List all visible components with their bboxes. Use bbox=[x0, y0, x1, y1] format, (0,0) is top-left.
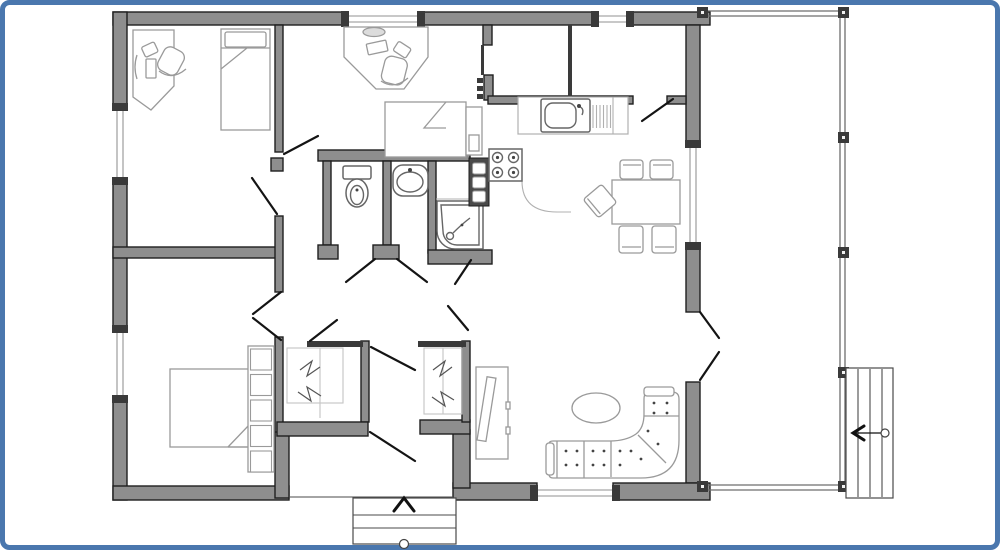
wall-segment bbox=[113, 486, 289, 500]
window-cap bbox=[112, 325, 128, 333]
window-cap bbox=[112, 103, 128, 111]
hinge-tick bbox=[477, 86, 483, 91]
wall-segment bbox=[453, 430, 470, 488]
door-swing bbox=[346, 259, 375, 282]
window bbox=[685, 140, 701, 250]
thin-wall bbox=[481, 45, 484, 75]
door-swing bbox=[448, 306, 468, 330]
dining-chair bbox=[620, 160, 643, 179]
window-cap bbox=[530, 485, 538, 501]
wardrobe-closet-right bbox=[424, 348, 462, 414]
door-swing bbox=[700, 352, 719, 380]
thin-wall bbox=[307, 341, 363, 347]
door-swing bbox=[252, 178, 277, 214]
window-cap bbox=[612, 485, 620, 501]
sofa-armrest bbox=[644, 387, 674, 396]
desk-tray bbox=[363, 28, 385, 37]
wall-segment bbox=[686, 243, 700, 312]
thin-wall bbox=[418, 341, 466, 347]
wall-segment bbox=[113, 12, 127, 110]
wall-segment bbox=[275, 337, 283, 432]
door-swing bbox=[700, 312, 719, 338]
wall-segment bbox=[483, 25, 492, 45]
terrace-post-center bbox=[842, 371, 845, 374]
wall-segment bbox=[686, 382, 700, 483]
dining-table bbox=[612, 180, 680, 224]
wall-segment bbox=[686, 25, 700, 147]
arrow-knob bbox=[881, 429, 889, 437]
thin-wall bbox=[568, 25, 572, 98]
dining-chair bbox=[619, 226, 643, 253]
tv-cabinet bbox=[476, 367, 510, 459]
tall-cabinet bbox=[469, 158, 489, 206]
stove bbox=[489, 149, 522, 181]
sofa-armrest bbox=[546, 443, 554, 475]
side-stairs bbox=[846, 368, 893, 498]
entry-porch bbox=[289, 497, 456, 549]
terrace-post-center bbox=[701, 485, 704, 488]
wall-segment bbox=[113, 12, 348, 25]
window-cap bbox=[417, 11, 425, 27]
wardrobe-closet-left bbox=[287, 348, 343, 418]
window bbox=[530, 485, 620, 501]
terrace-post-center bbox=[842, 136, 845, 139]
terrace-layer bbox=[697, 7, 849, 492]
porch-knob bbox=[400, 540, 409, 549]
keyboard-icon bbox=[146, 59, 156, 78]
hinge-tick bbox=[477, 94, 483, 99]
window-cap bbox=[341, 11, 349, 27]
wall-segment bbox=[613, 483, 710, 500]
terrace-post-center bbox=[842, 11, 845, 14]
door-swing bbox=[253, 318, 281, 340]
terrace-post-center bbox=[842, 251, 845, 254]
wall-segment bbox=[275, 216, 283, 292]
wall-segment bbox=[275, 430, 289, 498]
wall-segment bbox=[323, 161, 331, 245]
window-cap bbox=[685, 140, 701, 148]
window bbox=[341, 11, 425, 27]
dining-set bbox=[583, 160, 680, 253]
door-swing bbox=[370, 432, 415, 461]
pillow bbox=[225, 32, 266, 47]
door-swing bbox=[310, 320, 337, 341]
wall-segment bbox=[428, 250, 492, 264]
wall-segment bbox=[271, 158, 283, 171]
toilet bbox=[343, 166, 371, 207]
terrace-post-center bbox=[701, 11, 704, 14]
dining-chair bbox=[652, 226, 676, 253]
door-swing bbox=[397, 259, 427, 282]
single-bed-horizontal bbox=[385, 102, 482, 157]
door-swing bbox=[284, 136, 318, 154]
window bbox=[591, 11, 634, 27]
wall-segment bbox=[113, 396, 127, 500]
porch-outline bbox=[353, 498, 456, 544]
door-swing bbox=[253, 292, 281, 314]
wall-segment bbox=[318, 245, 338, 259]
wall-segment bbox=[361, 341, 369, 422]
window bbox=[112, 325, 128, 403]
wall-segment bbox=[275, 25, 283, 152]
wall-segment bbox=[373, 245, 399, 259]
double-bed bbox=[170, 346, 274, 472]
oval-coffee-table bbox=[572, 393, 620, 423]
window-cap bbox=[591, 11, 599, 27]
window bbox=[112, 103, 128, 185]
wall-segment bbox=[383, 161, 391, 245]
window-cap bbox=[112, 177, 128, 185]
wall-segment bbox=[462, 341, 470, 422]
door-swing bbox=[371, 347, 415, 370]
single-bed-vertical bbox=[221, 29, 270, 130]
wall-segment bbox=[277, 422, 368, 436]
terrace-post-center bbox=[842, 485, 845, 488]
window-cap bbox=[685, 242, 701, 250]
door-swing bbox=[642, 99, 673, 121]
dining-chair bbox=[650, 160, 673, 179]
floor-plan-page bbox=[0, 0, 1000, 550]
window-cap bbox=[112, 395, 128, 403]
wall-segment bbox=[113, 247, 277, 258]
hinge-tick bbox=[477, 78, 483, 83]
wall-segment bbox=[418, 12, 598, 25]
washbasin bbox=[393, 165, 428, 196]
floor-plan-drawing bbox=[0, 0, 1000, 550]
wall-segment bbox=[428, 161, 436, 253]
window-cap bbox=[626, 11, 634, 27]
